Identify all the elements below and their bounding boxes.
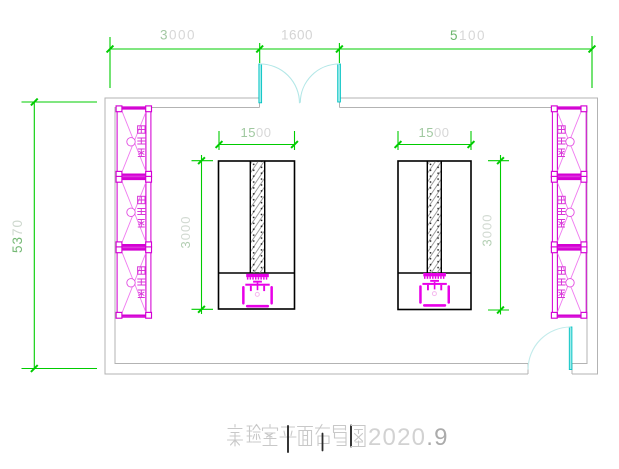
svg-text:1500: 1500	[241, 125, 272, 140]
svg-text:5100: 5100	[450, 28, 486, 43]
svg-text:3000: 3000	[160, 28, 196, 43]
svg-text:5370: 5370	[10, 219, 25, 253]
svg-text:2020.9: 2020.9	[368, 424, 449, 451]
svg-text:1500: 1500	[419, 125, 450, 140]
svg-text:3000: 3000	[480, 214, 495, 247]
svg-text:3000: 3000	[178, 216, 193, 249]
svg-text:1600: 1600	[281, 28, 313, 43]
